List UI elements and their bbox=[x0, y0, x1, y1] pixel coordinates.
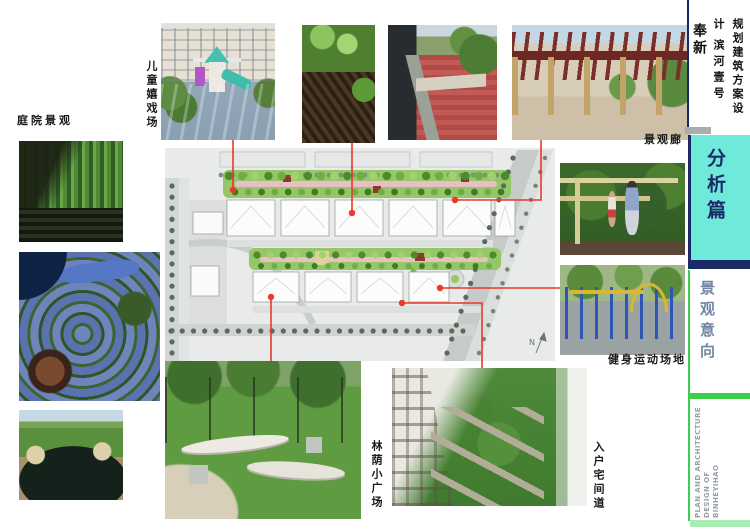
label-fitness-area: 健身运动场地 bbox=[608, 351, 686, 367]
site-plan: N bbox=[165, 148, 555, 361]
green-rule-horizontal bbox=[690, 393, 750, 399]
caption-line: BINHEYIHAO bbox=[712, 404, 721, 518]
presentation-board: N 庭院景观 儿童嬉戏场 景观廊 健身运动场地 林荫小广场 入户宅间道 规划建筑… bbox=[0, 0, 750, 530]
subsection-title: 景观意向 bbox=[697, 280, 718, 364]
stone-block-shape bbox=[189, 465, 209, 484]
playground-slide-shape bbox=[221, 68, 253, 91]
light-green-bar bbox=[690, 520, 750, 527]
road-side-shape bbox=[406, 55, 440, 140]
photo-children-playground bbox=[161, 23, 275, 140]
photo-fitness-equipment bbox=[560, 265, 685, 355]
photo-tree-plaza bbox=[165, 361, 361, 519]
label-children-playground: 儿童嬉戏场 bbox=[143, 60, 159, 130]
person-shape bbox=[608, 191, 617, 228]
playground-panel-shape bbox=[195, 67, 205, 86]
north-buildings bbox=[220, 152, 492, 167]
navy-divider bbox=[688, 260, 750, 269]
project-name: 奉新 bbox=[691, 23, 707, 57]
trellis-post-shape bbox=[575, 178, 580, 244]
bench-shape bbox=[247, 459, 346, 482]
equipment-arch-shape bbox=[630, 283, 668, 312]
person-shape bbox=[625, 181, 639, 234]
photo-red-paved-road bbox=[388, 25, 497, 140]
photo-courtyard-bamboo bbox=[19, 141, 123, 242]
photo-hedge-trellis bbox=[560, 163, 685, 255]
bench-shape bbox=[180, 431, 289, 456]
label-tree-plaza: 林荫小广场 bbox=[368, 440, 384, 510]
photo-wooden-boardwalk bbox=[302, 25, 375, 143]
playground-roof-shape bbox=[204, 46, 229, 62]
photo-pergola-corridor bbox=[512, 25, 690, 140]
equipment-bar-shape bbox=[570, 290, 643, 294]
photo-stone-fountain bbox=[19, 410, 123, 500]
photo-courtyard-night-paving bbox=[19, 252, 160, 401]
label-entry-path: 入户宅间道 bbox=[590, 441, 606, 511]
english-caption: PLAN AND ARCHITECTURE DESIGN OF BINHEYIH… bbox=[694, 404, 721, 518]
caption-line: PLAN AND ARCHITECTURE bbox=[694, 404, 703, 518]
title-columns: 规划建筑方案设计 滨河壹号 奉新 bbox=[689, 18, 747, 126]
gray-tab bbox=[685, 127, 711, 134]
project-subtitle: 滨河壹号 bbox=[712, 39, 725, 103]
caption-line: DESIGN OF bbox=[703, 404, 712, 518]
compass-letter: N bbox=[529, 338, 535, 347]
title-block: 规划建筑方案设计 滨河壹号 奉新 bbox=[687, 0, 750, 128]
label-courtyard: 庭院景观 bbox=[17, 112, 73, 128]
crosswalk-shape bbox=[416, 73, 486, 91]
label-landscape-corridor: 景观廊 bbox=[644, 131, 683, 147]
analysis-section-panel: 分析篇 bbox=[688, 135, 750, 260]
photo-entry-path bbox=[392, 368, 587, 506]
stone-block-shape bbox=[306, 437, 322, 453]
section-title: 分析篇 bbox=[702, 148, 729, 226]
